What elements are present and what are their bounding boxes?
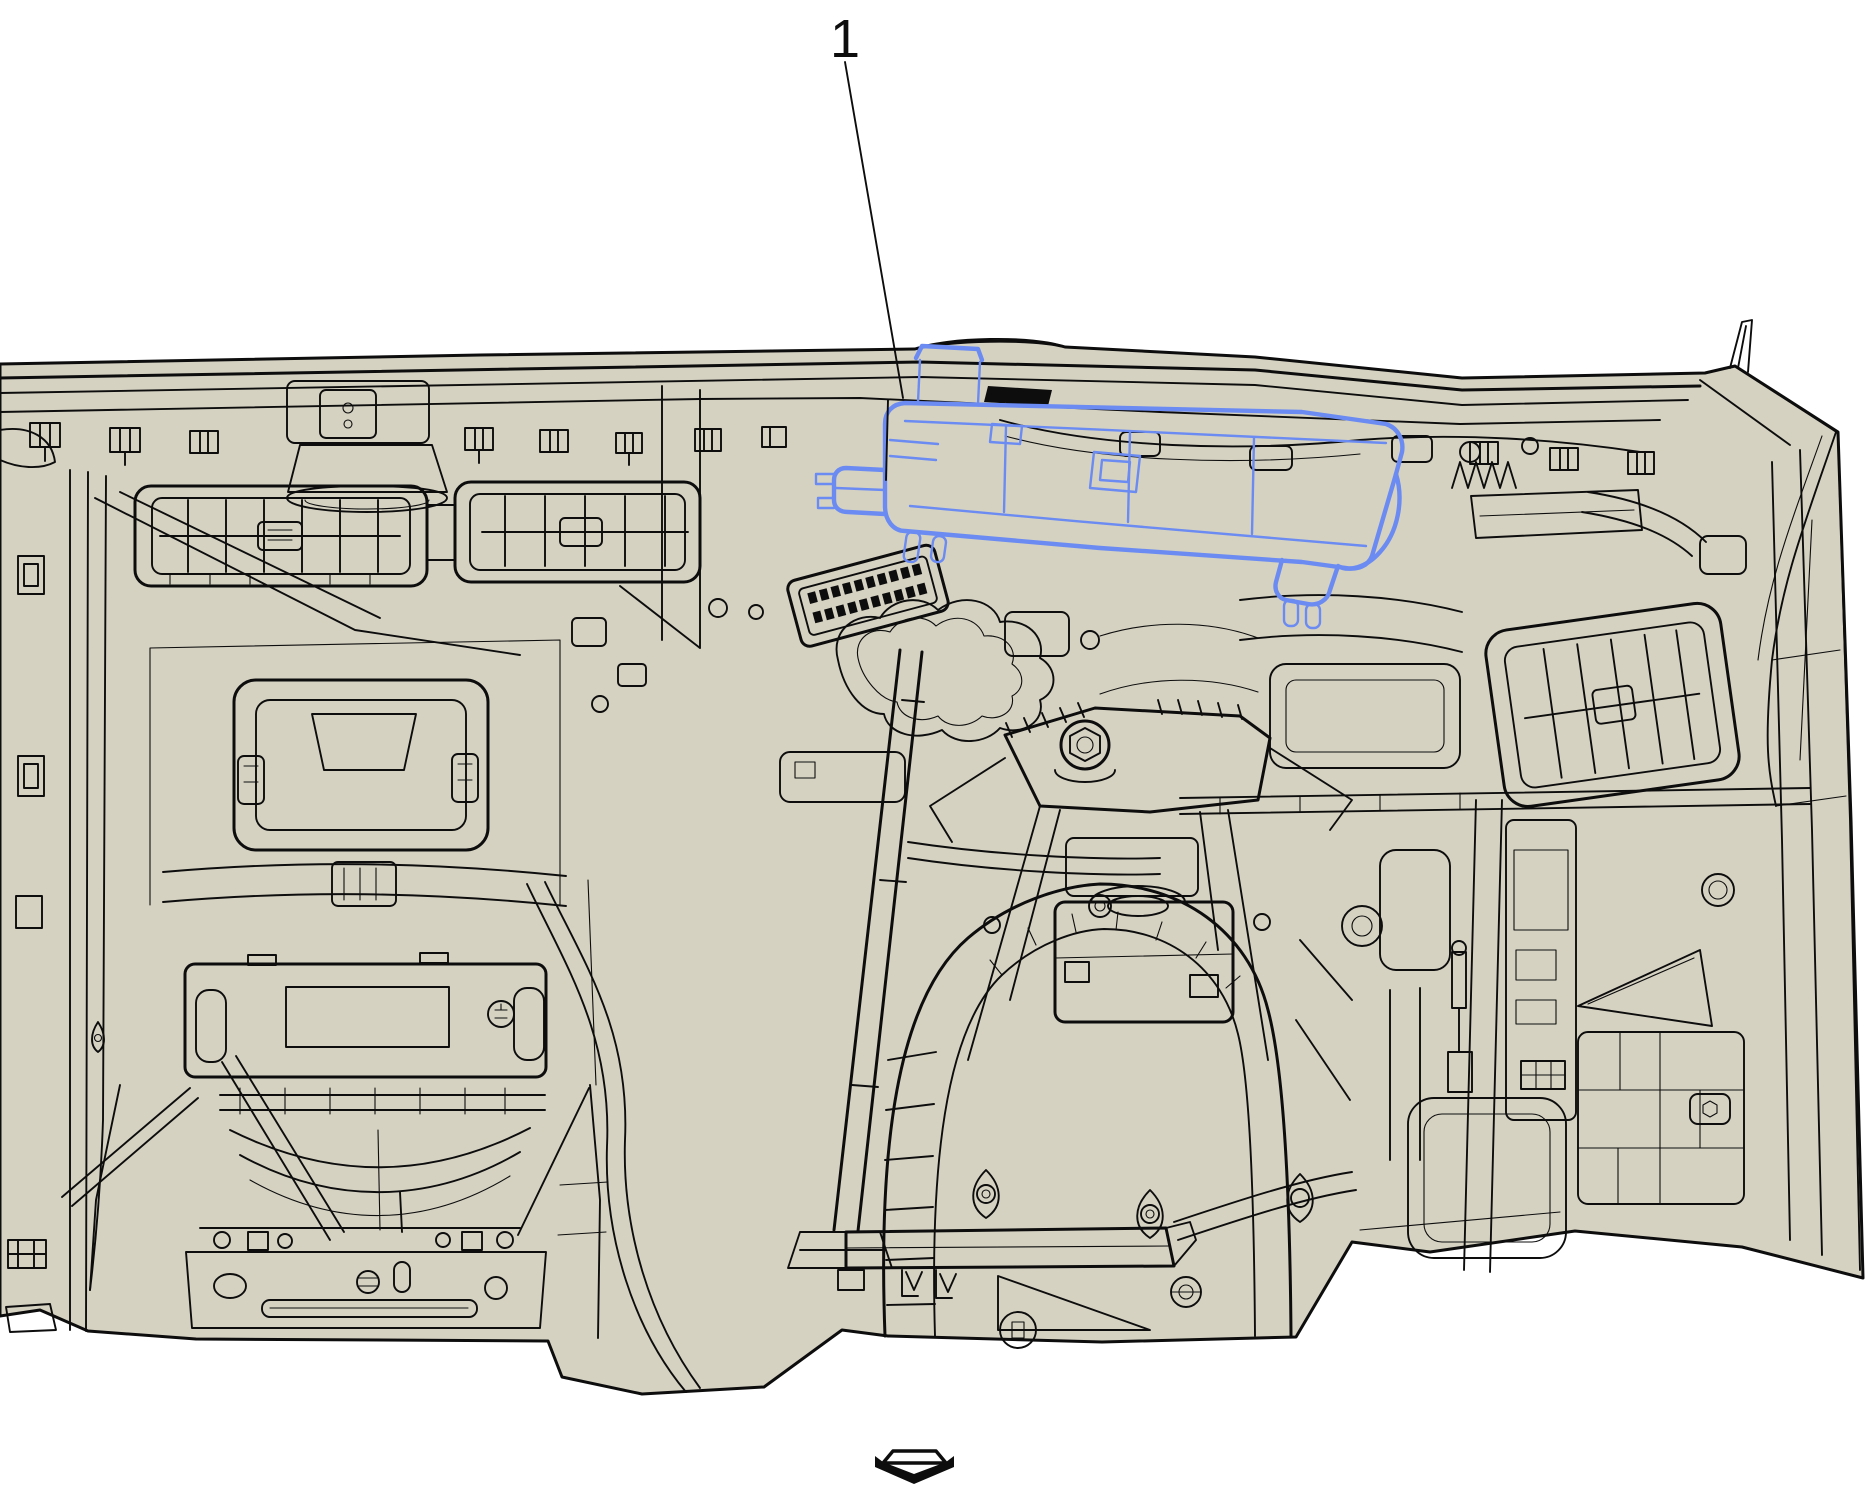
continuation-arrow-down-icon <box>875 1451 954 1484</box>
diagram-page: 1 <box>0 0 1867 1485</box>
callout-1-leader-line <box>845 62 903 398</box>
callout-1-label: 1 <box>830 9 860 69</box>
instrument-panel-diagram: 1 <box>0 0 1867 1485</box>
callout-1: 1 <box>830 9 903 398</box>
